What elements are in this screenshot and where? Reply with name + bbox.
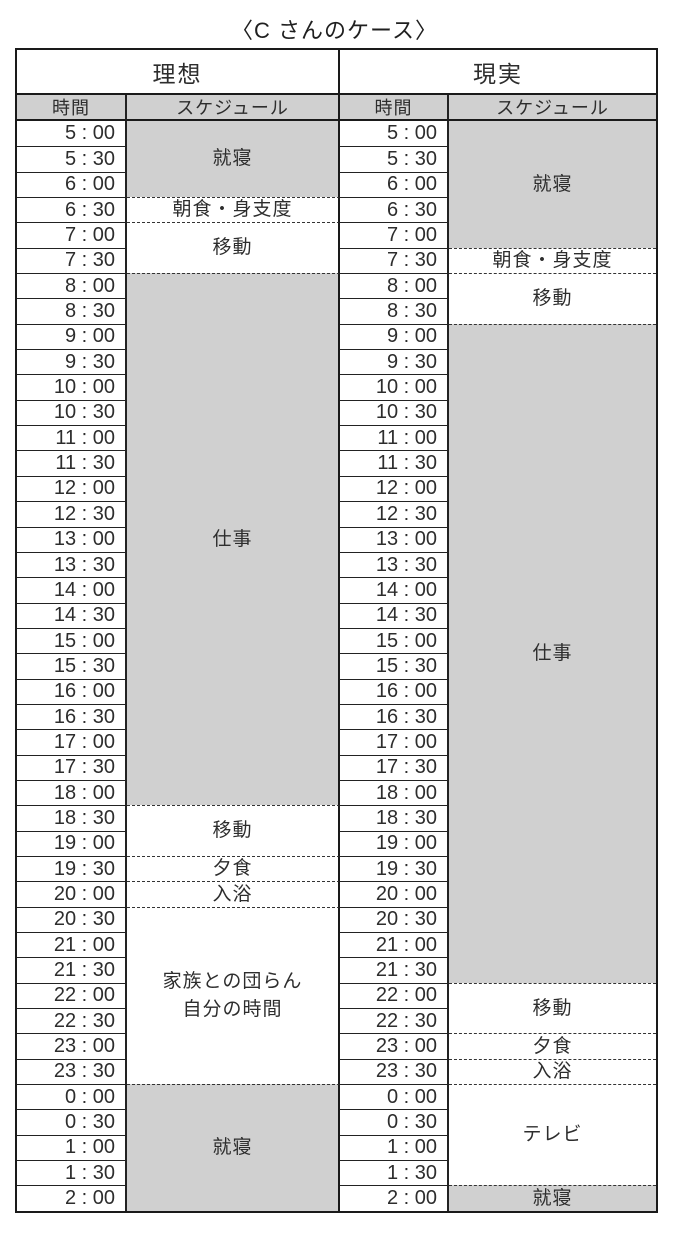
ideal-time-cell: 12 : 00 [17, 476, 127, 501]
real-time-cell: 23 : 30 [340, 1059, 449, 1084]
ideal-time-cell: 22 : 30 [17, 1008, 127, 1033]
ideal-time-cell: 7 : 00 [17, 222, 127, 247]
ideal-time-cell: 1 : 30 [17, 1160, 127, 1185]
real-schedule-block: 移動 [449, 273, 656, 324]
ideal-schedule-column-header: スケジュール [127, 95, 340, 121]
real-time-cell: 19 : 30 [340, 856, 449, 881]
ideal-time-cell: 15 : 00 [17, 628, 127, 653]
ideal-time-cell: 14 : 00 [17, 577, 127, 602]
real-time-cell: 10 : 30 [340, 400, 449, 425]
ideal-time-cell: 18 : 30 [17, 805, 127, 830]
ideal-schedule-block: 朝食・身支度 [127, 197, 340, 222]
real-schedule-block: テレビ [449, 1084, 656, 1185]
ideal-time-cell: 0 : 00 [17, 1084, 127, 1109]
ideal-time-cell: 23 : 00 [17, 1033, 127, 1058]
ideal-time-cell: 11 : 00 [17, 425, 127, 450]
real-time-cell: 5 : 00 [340, 121, 449, 146]
ideal-schedule-block: 夕食 [127, 856, 340, 881]
real-time-cell: 12 : 30 [340, 501, 449, 526]
ideal-time-cell: 21 : 30 [17, 957, 127, 982]
ideal-time-cell: 11 : 30 [17, 450, 127, 475]
real-time-cell: 2 : 00 [340, 1185, 449, 1210]
ideal-time-cell: 13 : 00 [17, 527, 127, 552]
real-schedule-block: 移動 [449, 983, 656, 1034]
real-time-cell: 22 : 00 [340, 983, 449, 1008]
real-time-cell: 21 : 30 [340, 957, 449, 982]
ideal-time-cell: 20 : 30 [17, 907, 127, 932]
ideal-time-cell: 6 : 30 [17, 197, 127, 222]
ideal-time-cell: 2 : 00 [17, 1185, 127, 1210]
ideal-time-cell: 19 : 30 [17, 856, 127, 881]
ideal-time-cell: 1 : 00 [17, 1135, 127, 1160]
real-time-cell: 10 : 00 [340, 374, 449, 399]
ideal-time-cell: 18 : 00 [17, 780, 127, 805]
real-time-cell: 22 : 30 [340, 1008, 449, 1033]
real-time-cell: 18 : 00 [340, 780, 449, 805]
real-time-cell: 1 : 00 [340, 1135, 449, 1160]
ideal-schedule-block: 移動 [127, 222, 340, 273]
real-time-cell: 15 : 30 [340, 653, 449, 678]
ideal-schedule-block: 入浴 [127, 881, 340, 906]
ideal-time-cell: 22 : 00 [17, 983, 127, 1008]
ideal-time-cell: 17 : 30 [17, 755, 127, 780]
ideal-header-cell: 理想 [17, 50, 340, 95]
ideal-schedule-block: 家族との団らん 自分の時間 [127, 907, 340, 1084]
ideal-time-cell: 5 : 30 [17, 146, 127, 171]
schedule-table: 理想 現実 時間 スケジュール 時間 スケジュール 5 : 005 : 005 … [15, 48, 658, 1213]
real-time-cell: 13 : 30 [340, 552, 449, 577]
ideal-time-cell: 17 : 00 [17, 729, 127, 754]
real-schedule-block: 朝食・身支度 [449, 248, 656, 273]
real-time-cell: 8 : 30 [340, 298, 449, 323]
ideal-time-cell: 21 : 00 [17, 932, 127, 957]
ideal-schedule-block: 就寝 [127, 1084, 340, 1211]
ideal-time-cell: 16 : 00 [17, 679, 127, 704]
ideal-time-cell: 19 : 00 [17, 831, 127, 856]
page: 〈C さんのケース〉 理想 現実 時間 スケジュール 時間 スケジュール 5 :… [0, 0, 694, 1242]
real-time-cell: 5 : 30 [340, 146, 449, 171]
real-schedule-block: 就寝 [449, 121, 656, 248]
real-time-cell: 15 : 00 [340, 628, 449, 653]
ideal-time-cell: 20 : 00 [17, 881, 127, 906]
real-header-cell: 現実 [340, 50, 656, 95]
ideal-time-cell: 23 : 30 [17, 1059, 127, 1084]
ideal-time-cell: 12 : 30 [17, 501, 127, 526]
ideal-time-cell: 13 : 30 [17, 552, 127, 577]
ideal-time-cell: 8 : 00 [17, 273, 127, 298]
real-schedule-column-header: スケジュール [449, 95, 656, 121]
ideal-time-cell: 7 : 30 [17, 248, 127, 273]
ideal-time-cell: 14 : 30 [17, 603, 127, 628]
real-time-cell: 14 : 30 [340, 603, 449, 628]
real-time-cell: 16 : 00 [340, 679, 449, 704]
real-time-cell: 8 : 00 [340, 273, 449, 298]
ideal-schedule-block: 仕事 [127, 273, 340, 805]
ideal-schedule-block: 移動 [127, 805, 340, 856]
real-schedule-block: 仕事 [449, 324, 656, 983]
ideal-time-cell: 10 : 30 [17, 400, 127, 425]
ideal-time-cell: 5 : 00 [17, 121, 127, 146]
ideal-time-cell: 0 : 30 [17, 1109, 127, 1134]
real-time-cell: 11 : 00 [340, 425, 449, 450]
real-time-cell: 9 : 30 [340, 349, 449, 374]
real-time-cell: 6 : 00 [340, 172, 449, 197]
ideal-time-cell: 8 : 30 [17, 298, 127, 323]
ideal-time-cell: 16 : 30 [17, 704, 127, 729]
real-time-cell: 20 : 00 [340, 881, 449, 906]
ideal-time-cell: 10 : 00 [17, 374, 127, 399]
real-time-cell: 0 : 00 [340, 1084, 449, 1109]
ideal-time-cell: 9 : 00 [17, 324, 127, 349]
real-time-cell: 23 : 00 [340, 1033, 449, 1058]
real-time-cell: 18 : 30 [340, 805, 449, 830]
real-time-column-header: 時間 [340, 95, 449, 121]
real-schedule-block: 入浴 [449, 1059, 656, 1084]
real-time-cell: 11 : 30 [340, 450, 449, 475]
ideal-time-cell: 9 : 30 [17, 349, 127, 374]
real-schedule-block: 夕食 [449, 1033, 656, 1058]
real-time-cell: 0 : 30 [340, 1109, 449, 1134]
real-schedule-block: 就寝 [449, 1185, 656, 1210]
ideal-time-column-header: 時間 [17, 95, 127, 121]
page-title: 〈C さんのケース〉 [15, 13, 654, 45]
real-time-cell: 12 : 00 [340, 476, 449, 501]
real-time-cell: 21 : 00 [340, 932, 449, 957]
ideal-schedule-block: 就寝 [127, 121, 340, 197]
real-time-cell: 16 : 30 [340, 704, 449, 729]
ideal-time-cell: 6 : 00 [17, 172, 127, 197]
real-time-cell: 7 : 30 [340, 248, 449, 273]
real-time-cell: 6 : 30 [340, 197, 449, 222]
real-time-cell: 7 : 00 [340, 222, 449, 247]
real-time-cell: 14 : 00 [340, 577, 449, 602]
real-time-cell: 13 : 00 [340, 527, 449, 552]
real-time-cell: 19 : 00 [340, 831, 449, 856]
real-time-cell: 9 : 00 [340, 324, 449, 349]
real-time-cell: 1 : 30 [340, 1160, 449, 1185]
ideal-time-cell: 15 : 30 [17, 653, 127, 678]
real-time-cell: 20 : 30 [340, 907, 449, 932]
real-time-cell: 17 : 30 [340, 755, 449, 780]
real-time-cell: 17 : 00 [340, 729, 449, 754]
